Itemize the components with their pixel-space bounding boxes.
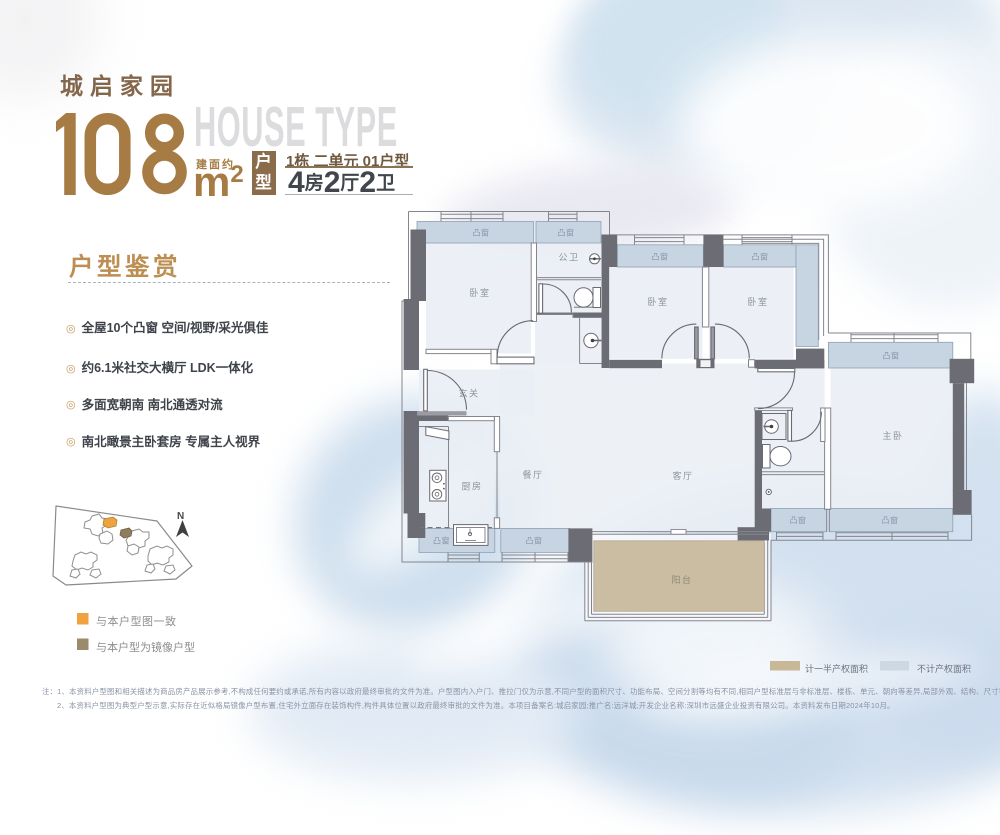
svg-text:N: N	[177, 511, 184, 522]
